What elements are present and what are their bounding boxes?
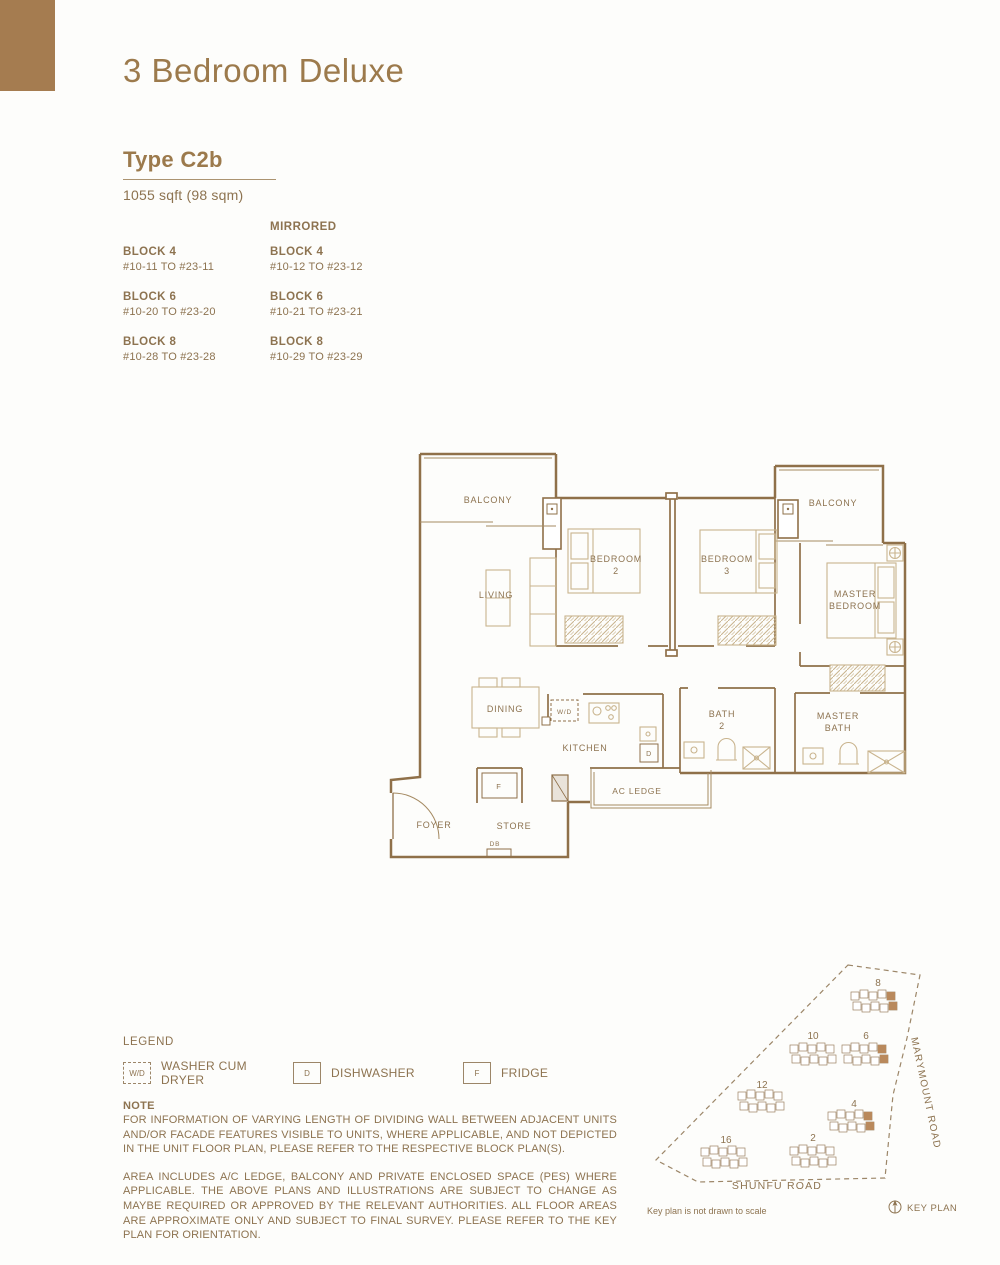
room-label-master-1: MASTER (834, 589, 876, 599)
appliance-boxes (482, 744, 658, 857)
block-cluster-12 (738, 1090, 784, 1112)
unit-range: #10-28 TO #23-28 (123, 351, 270, 363)
legend-heading: LEGEND (123, 1036, 643, 1048)
label-dishwasher: D (646, 751, 652, 758)
room-labels-layer: BALCONY LIVING BEDROOM 2 BEDROOM 3 BALCO… (416, 495, 881, 848)
north-arrow-icon (889, 1200, 901, 1213)
label-wd: W/D (557, 709, 572, 716)
furniture-layer (472, 529, 905, 773)
room-label-bath2-2: 2 (719, 721, 725, 731)
room-label-bedroom3-num: 3 (724, 566, 730, 576)
block-label-6: 6 (863, 1031, 869, 1042)
room-label-foyer: FOYER (416, 820, 451, 830)
label-fridge: F (496, 782, 501, 791)
unit-type-label: Type C2b (123, 147, 223, 173)
room-label-masterbath-1: MASTER (817, 711, 859, 721)
room-label-dining: DINING (487, 704, 523, 714)
block-name: BLOCK 6 (123, 291, 270, 303)
room-label-balcony-left: BALCONY (464, 495, 513, 505)
room-label-balcony-right: BALCONY (809, 498, 858, 508)
room-label-bath2-1: BATH (709, 709, 736, 719)
block-label-10: 10 (807, 1031, 819, 1042)
mirrored-heading: MIRRORED (270, 221, 363, 246)
room-label-ac-ledge: AC LEDGE (612, 786, 661, 796)
legend-item-dishwasher: D DISHWASHER (293, 1062, 463, 1084)
unit-range: #10-11 TO #23-11 (123, 261, 270, 273)
unit-range: #10-21 TO #23-21 (270, 306, 363, 318)
block-name: BLOCK 4 (123, 246, 270, 258)
block-cluster-2 (790, 1145, 836, 1167)
type-underline (123, 179, 276, 180)
washer-dryer-symbol: W/D (123, 1062, 151, 1084)
spacer (123, 221, 270, 246)
room-label-bedroom2: BEDROOM (590, 554, 642, 564)
dishwasher-symbol: D (293, 1062, 321, 1084)
availability-entry: BLOCK 4 #10-12 TO #23-12 (270, 246, 363, 273)
note-paragraph-2: AREA INCLUDES A/C LEDGE, BALCONY AND PRI… (123, 1170, 617, 1243)
room-label-masterbath-2: BATH (825, 723, 852, 733)
block-label-4: 4 (851, 1099, 857, 1110)
riser-shaft (552, 775, 568, 801)
room-label-master-2: BEDROOM (829, 601, 881, 611)
room-label-bedroom2-num: 2 (613, 566, 619, 576)
block-name: BLOCK 8 (270, 336, 363, 348)
block-label-12: 12 (756, 1080, 768, 1091)
availability-entry: BLOCK 8 #10-29 TO #23-29 (270, 336, 363, 363)
room-label-living: LIVING (479, 590, 513, 600)
block-label-8: 8 (875, 978, 881, 989)
legend-item-washer-dryer: W/D WASHER CUM DRYER (123, 1059, 293, 1087)
legend: LEGEND W/D WASHER CUM DRYER D DISHWASHER… (123, 1036, 643, 1087)
block-cluster-10 (790, 1043, 836, 1065)
page-title: 3 Bedroom Deluxe (123, 52, 404, 90)
availability-entry: BLOCK 6 #10-21 TO #23-21 (270, 291, 363, 318)
keyplan-disclaimer: Key plan is not drawn to scale (647, 1206, 767, 1216)
block-label-16: 16 (720, 1135, 732, 1146)
fridge-label: FRIDGE (501, 1066, 548, 1080)
availability-entry: BLOCK 6 #10-20 TO #23-20 (123, 291, 270, 318)
brand-logo-square (0, 0, 55, 91)
washer-dryer-label: WASHER CUM DRYER (161, 1059, 293, 1087)
dishwasher-label: DISHWASHER (331, 1066, 415, 1080)
interior-walls-layer (477, 493, 905, 803)
legend-item-fridge: F FRIDGE (463, 1062, 548, 1084)
availability-table: BLOCK 4 #10-11 TO #23-11 BLOCK 6 #10-20 … (123, 221, 363, 381)
availability-mirrored-column: MIRRORED BLOCK 4 #10-12 TO #23-12 BLOCK … (270, 221, 363, 381)
availability-entry: BLOCK 4 #10-11 TO #23-11 (123, 246, 270, 273)
label-db: DB (490, 841, 501, 848)
block-cluster-6 (842, 1043, 888, 1065)
block-cluster-8 (851, 990, 897, 1012)
room-label-bedroom3: BEDROOM (701, 554, 753, 564)
block-name: BLOCK 4 (270, 246, 363, 258)
keyplan-caption: KEY PLAN (907, 1203, 957, 1214)
block-cluster-16 (701, 1146, 747, 1168)
thin-lines-layer (393, 458, 883, 839)
block-label-2: 2 (810, 1133, 816, 1144)
unit-range: #10-12 TO #23-12 (270, 261, 363, 273)
block-name: BLOCK 8 (123, 336, 270, 348)
exterior-walls-layer (391, 454, 905, 857)
road-label-shunfu: SHUNFU ROAD (732, 1180, 822, 1192)
note-section: NOTE FOR INFORMATION OF VARYING LENGTH O… (123, 1100, 617, 1243)
floor-plan-drawing: BALCONY LIVING BEDROOM 2 BEDROOM 3 BALCO… (378, 446, 918, 880)
unit-range: #10-20 TO #23-20 (123, 306, 270, 318)
fridge-symbol: F (463, 1062, 491, 1084)
unit-range: #10-29 TO #23-29 (270, 351, 363, 363)
block-cluster-4 (828, 1110, 874, 1132)
wall-post (542, 717, 550, 725)
key-plan: 8 10 6 12 4 16 2 MARYMOUNT ROAD SHUNFU R… (645, 958, 997, 1248)
brochure-page: 3 Bedroom Deluxe Type C2b 1055 sqft (98 … (0, 0, 1000, 1265)
note-heading: NOTE (123, 1100, 617, 1112)
road-label-marymount: MARYMOUNT ROAD (908, 1036, 942, 1149)
block-name: BLOCK 6 (270, 291, 363, 303)
legend-row: W/D WASHER CUM DRYER D DISHWASHER F FRID… (123, 1059, 643, 1087)
unit-area: 1055 sqft (98 sqm) (123, 187, 243, 203)
room-label-store: STORE (497, 821, 532, 831)
availability-entry: BLOCK 8 #10-28 TO #23-28 (123, 336, 270, 363)
availability-standard-column: BLOCK 4 #10-11 TO #23-11 BLOCK 6 #10-20 … (123, 221, 270, 381)
note-paragraph-1: FOR INFORMATION OF VARYING LENGTH OF DIV… (123, 1113, 617, 1157)
room-label-kitchen: KITCHEN (562, 743, 607, 753)
